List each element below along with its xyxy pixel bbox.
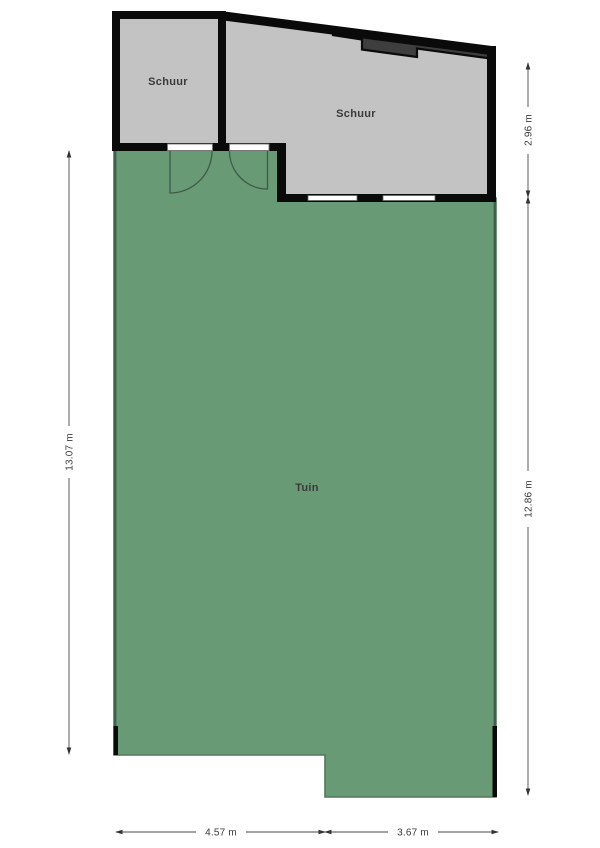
arrow-up-icon: [526, 62, 531, 70]
dimension-bottom-right-label: 3.67 m: [397, 828, 429, 839]
shed-right-label: Schuur: [336, 108, 376, 120]
dimension-bottom-left-label: 4.57 m: [205, 828, 237, 839]
wall-top-left: [112, 11, 226, 19]
floor-plan-page: Schuur Schuur Tuin 13.07 m 2.96 m 12.86 …: [0, 0, 600, 848]
arrow-left-icon: [115, 830, 123, 835]
shed-left-label: Schuur: [148, 76, 188, 88]
window-right: [383, 196, 435, 201]
arrow-up-icon: [67, 150, 72, 158]
arrow-left-icon: [324, 830, 332, 835]
wall-connector: [277, 143, 286, 202]
dimension-right-top: 2.96 m: [522, 62, 535, 198]
floor-plan-canvas: Schuur Schuur Tuin 13.07 m 2.96 m 12.86 …: [0, 0, 600, 848]
dimension-bottom-left: 4.57 m: [115, 826, 326, 839]
wall-divider: [218, 11, 226, 151]
boundary-stub-right: [493, 726, 498, 797]
garden-label: Tuin: [295, 482, 319, 494]
wall-left: [112, 11, 120, 151]
door-opening-right: [230, 144, 270, 151]
arrow-right-icon: [492, 830, 500, 835]
dimension-right-bottom-label: 12.86 m: [524, 480, 535, 518]
dimension-left: 13.07 m: [63, 150, 76, 755]
window-left: [308, 196, 357, 201]
boundary-stub-left: [114, 726, 119, 755]
wall-right: [487, 46, 496, 202]
dimension-right-bottom: 12.86 m: [522, 196, 535, 796]
garden-area: [114, 147, 496, 797]
dimension-bottom-right: 3.67 m: [324, 826, 499, 839]
dimension-left-label: 13.07 m: [65, 433, 76, 471]
dimension-right-top-label: 2.96 m: [524, 114, 535, 146]
garden-shape: [114, 147, 496, 797]
door-opening-left: [168, 144, 213, 151]
arrow-down-icon: [67, 748, 72, 756]
arrow-down-icon: [526, 789, 531, 797]
arrow-up-icon: [526, 196, 531, 204]
